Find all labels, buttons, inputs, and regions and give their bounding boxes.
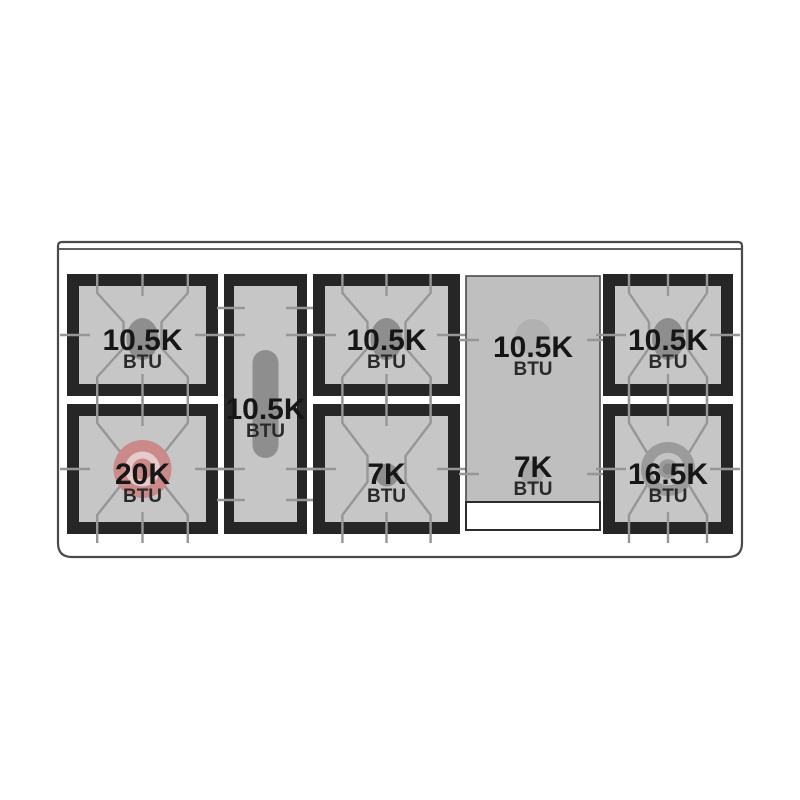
burner-right-rear-unit-label: BTU xyxy=(648,352,687,373)
burner-middle-front: 7K BTU xyxy=(306,398,467,543)
griddle-front-trim xyxy=(466,502,600,530)
burner-left-front: 20K BTU xyxy=(60,398,225,543)
griddle-section: 10.5K BTU 7K BTU xyxy=(459,276,607,530)
burner-left-front-unit-label: BTU xyxy=(123,486,162,507)
griddle-rear-unit-label: BTU xyxy=(513,359,552,380)
burner-left-rear-unit-label: BTU xyxy=(123,352,162,373)
burner-right-front: 16.5K BTU xyxy=(596,398,740,543)
burner-center-unit-label: BTU xyxy=(246,421,285,442)
burner-middle-front-unit-label: BTU xyxy=(367,486,406,507)
burner-middle-rear-unit-label: BTU xyxy=(367,352,406,373)
cooktop-btu-diagram: 10.5K BTU 20K BTU 10.5K BTU 10.5K BTU xyxy=(0,0,800,800)
burner-right-rear: 10.5K BTU xyxy=(596,274,740,402)
griddle-front-unit-label: BTU xyxy=(513,479,552,500)
burner-middle-rear: 10.5K BTU xyxy=(306,274,467,402)
burner-center-oval: 10.5K BTU xyxy=(217,274,314,534)
burner-left-rear: 10.5K BTU xyxy=(60,274,225,402)
cooktop-diagram-canvas: 10.5K BTU 20K BTU 10.5K BTU 10.5K BTU xyxy=(0,0,800,800)
burner-right-front-unit-label: BTU xyxy=(648,486,687,507)
